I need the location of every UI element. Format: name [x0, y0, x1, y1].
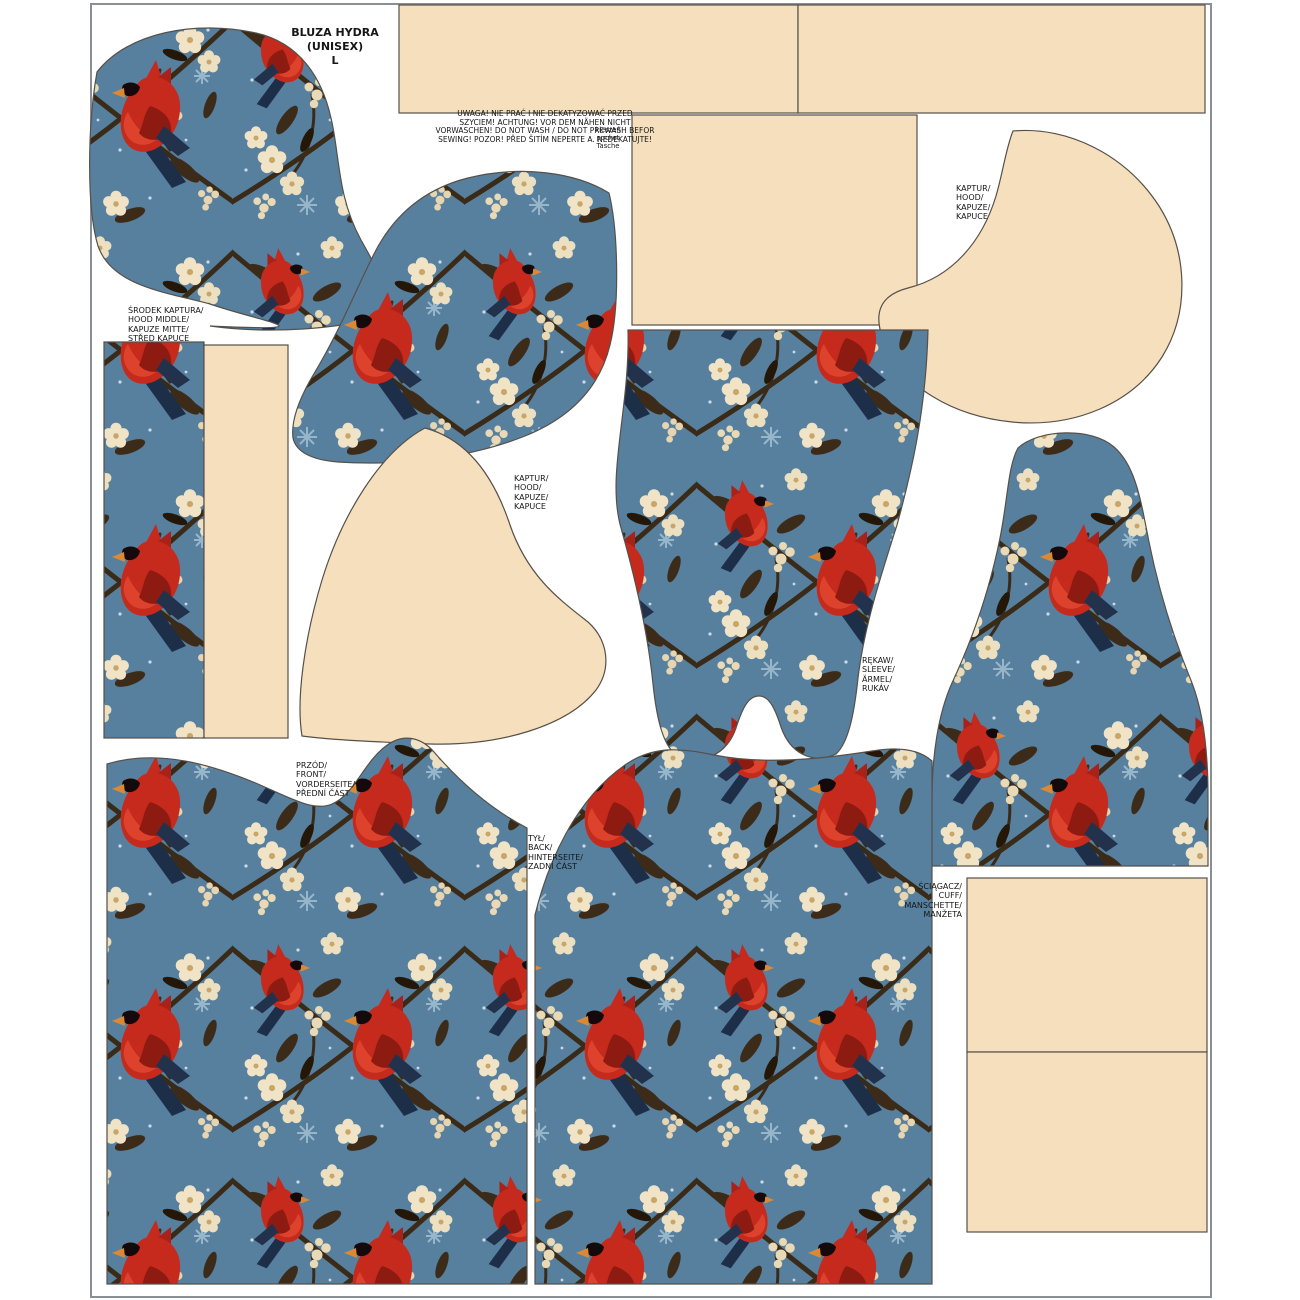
hood-middle-strip-print — [104, 342, 204, 738]
hood-piece-print-left — [90, 28, 391, 330]
hood-middle-strip-blank — [204, 345, 288, 738]
cuff-panel-top — [967, 878, 1207, 1052]
label-hood-middle: ŚRODEK KAPTURA/ HOOD MIDDLE/ KAPUZE MITT… — [128, 306, 203, 344]
front-piece — [107, 738, 527, 1284]
back-piece — [535, 749, 932, 1284]
pocket-note-label: kieszeń pocket Tasche — [586, 126, 630, 150]
sleeve-piece-print-center — [616, 330, 928, 760]
cuff-panel-bottom — [967, 1052, 1207, 1232]
sleeve-piece-print-right — [932, 433, 1208, 866]
label-sleeve: RĘKAW/ SLEEVE/ ÄRMEL/ RUKÁV — [862, 656, 895, 694]
label-hood-right: KAPTUR/ HOOD/ KAPUZE/ KAPUCE — [956, 184, 990, 222]
waistband-strip-right — [798, 5, 1205, 113]
hood-piece-blank-center — [300, 428, 606, 744]
waistband-strip-left — [399, 5, 798, 113]
label-front: PRZÓD/ FRONT/ VORDERSEITE/ PŘEDNÍ ČÁST — [296, 761, 355, 799]
pattern-sheet: BLUZA HYDRA (UNISEX) L UWAGA! NIE PRAĆ I… — [0, 0, 1300, 1300]
pattern-pieces-canvas — [0, 0, 1300, 1300]
label-hood-center: KAPTUR/ HOOD/ KAPUZE/ KAPUCE — [514, 474, 548, 512]
label-back: TYŁ/ BACK/ HINTERSEITE/ ZADNÍ ČÁST — [528, 834, 583, 872]
pocket-panel — [632, 115, 917, 325]
label-cuff: ŚCIĄGACZ/ CUFF/ MANSCHETTE/ MANŽETA — [898, 882, 962, 920]
product-title: BLUZA HYDRA (UNISEX) L — [268, 26, 402, 67]
